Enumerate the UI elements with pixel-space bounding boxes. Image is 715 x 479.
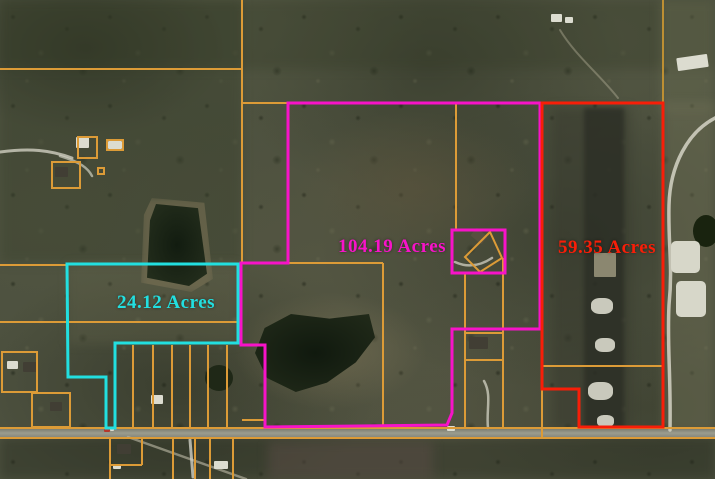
- red-parcel-boundary[interactable]: [542, 103, 663, 427]
- teal-parcel-acreage-label: 24.12 Acres: [117, 292, 215, 314]
- magenta-parcel-acreage-label: 104.19 Acres: [338, 236, 446, 258]
- magenta-inset-parcel-boundary[interactable]: [452, 230, 505, 273]
- aerial-parcel-map[interactable]: 24.12 Acres 104.19 Acres 59.35 Acres: [0, 0, 715, 479]
- magenta-parcel-boundary[interactable]: [241, 103, 540, 427]
- red-parcel-acreage-label: 59.35 Acres: [558, 237, 656, 259]
